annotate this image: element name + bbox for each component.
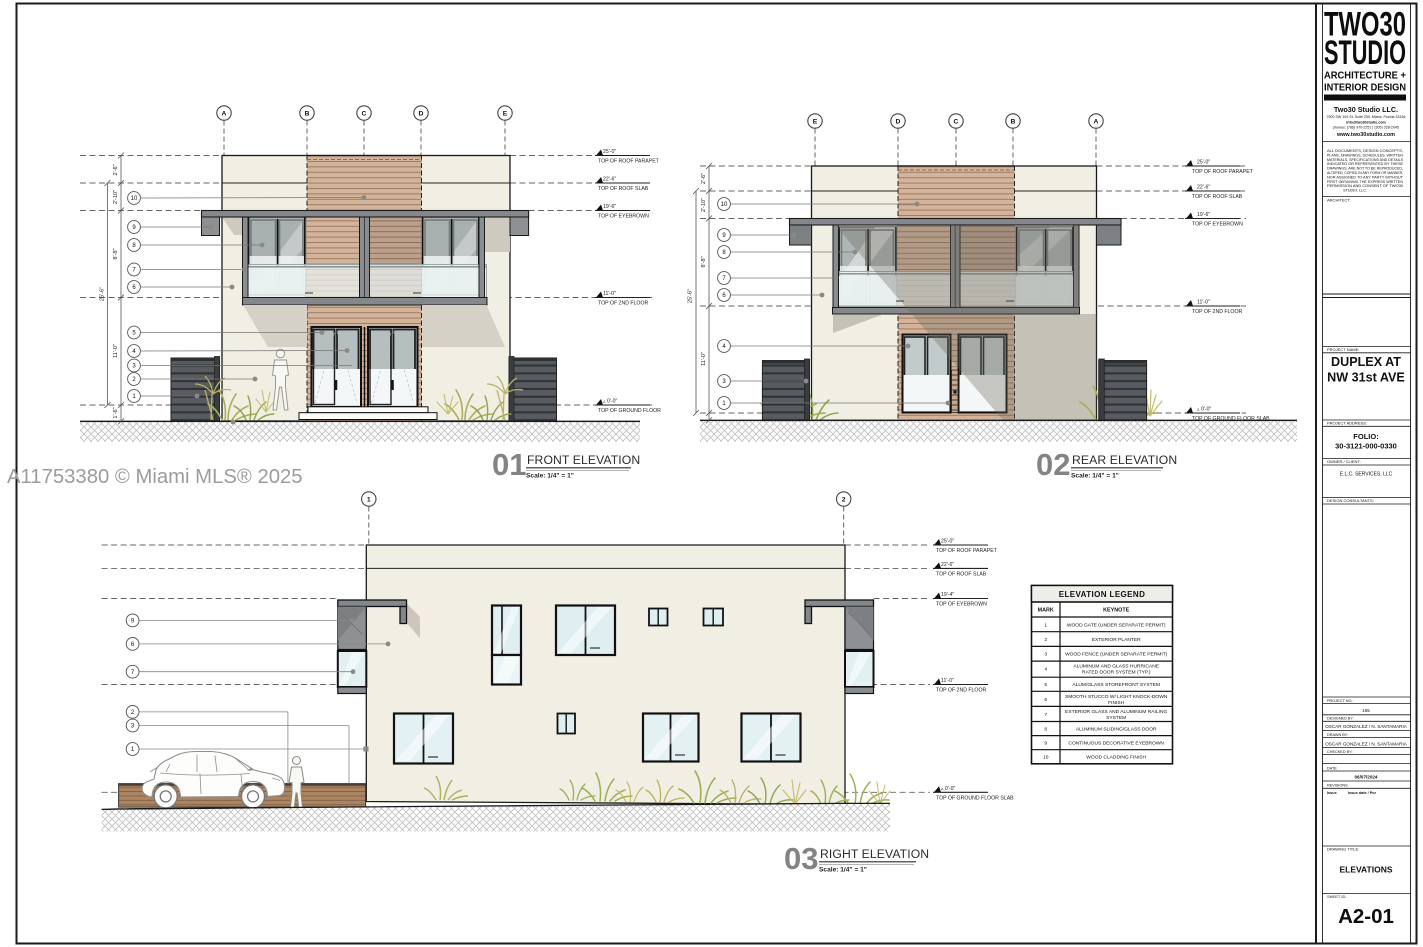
svg-text:DRAWN BY:: DRAWN BY: xyxy=(1327,733,1348,737)
svg-text:E: E xyxy=(813,119,818,126)
svg-text:4: 4 xyxy=(1044,667,1047,673)
svg-text:WOOD CLADDING FINISH: WOOD CLADDING FINISH xyxy=(1086,755,1146,761)
svg-text:RIGHT ELEVATION: RIGHT ELEVATION xyxy=(820,847,929,861)
svg-text:25'-0": 25'-0" xyxy=(1197,160,1210,166)
svg-text:TOP OF EYEBROWN: TOP OF EYEBROWN xyxy=(1192,222,1243,228)
svg-text:DATE: DATE xyxy=(1327,766,1337,770)
svg-text:OSCAR GONZALEZ / N. SANTAMARIA: OSCAR GONZALEZ / N. SANTAMARIA xyxy=(1325,741,1408,746)
svg-text:REAR ELEVATION: REAR ELEVATION xyxy=(1072,453,1177,467)
svg-text:6: 6 xyxy=(1044,697,1047,703)
svg-text:SMOOTH STUCCO W/ LIGHT KNOCK-D: SMOOTH STUCCO W/ LIGHT KNOCK-DOWN xyxy=(1065,694,1168,700)
svg-text:7: 7 xyxy=(1044,712,1047,718)
svg-text:TOP OF 2ND FLOOR: TOP OF 2ND FLOOR xyxy=(598,301,649,307)
svg-text:INTERIOR DESIGN: INTERIOR DESIGN xyxy=(1324,82,1406,94)
svg-text:▵ 0'-0": ▵ 0'-0" xyxy=(1197,407,1212,413)
svg-text:ARCHITECT:: ARCHITECT: xyxy=(1327,198,1351,203)
svg-text:▵ 0'-0": ▵ 0'-0" xyxy=(603,399,618,405)
svg-text:155: 155 xyxy=(1362,708,1370,713)
svg-text:TOP OF ROOF SLAB: TOP OF ROOF SLAB xyxy=(598,186,649,192)
svg-text:TOP OF GROUND FLOOR SLAB: TOP OF GROUND FLOOR SLAB xyxy=(1192,416,1270,422)
svg-text:01: 01 xyxy=(492,447,526,482)
svg-text:EXTERIOR GLASS AND ALUMINUM RA: EXTERIOR GLASS AND ALUMINUM RAILING xyxy=(1065,709,1167,715)
svg-text:NOR ASSIGNED TO ANY PARTY: NOR ASSIGNED TO ANY PARTY WITHOUT xyxy=(1327,175,1404,179)
svg-text:Two30 Studio LLC.: Two30 Studio LLC. xyxy=(1334,105,1398,114)
svg-text:TOP OF EYEBROWN: TOP OF EYEBROWN xyxy=(936,602,987,608)
svg-text:EXTERIOR PLANTER: EXTERIOR PLANTER xyxy=(1092,637,1141,643)
svg-text:02: 02 xyxy=(1036,447,1070,482)
svg-text:3: 3 xyxy=(1044,652,1047,658)
svg-text:ALUM/GLASS STOREFRONT SYSTEM: ALUM/GLASS STOREFRONT SYSTEM xyxy=(1072,682,1160,688)
svg-text:TOP OF ROOF PARAPET: TOP OF ROOF PARAPET xyxy=(936,548,998,554)
svg-text:2'-6": 2'-6" xyxy=(701,173,707,184)
svg-text:TOP OF ROOF SLAB: TOP OF ROOF SLAB xyxy=(936,572,987,578)
svg-text:A: A xyxy=(222,111,227,118)
svg-text:SYSTEM: SYSTEM xyxy=(1106,715,1126,721)
svg-text:FINISH: FINISH xyxy=(1108,700,1124,706)
svg-text:11'-0": 11'-0" xyxy=(701,352,707,366)
svg-text:B: B xyxy=(305,111,310,118)
svg-text:RATED DOOR SYSTEM (TYP.): RATED DOOR SYSTEM (TYP.) xyxy=(1082,670,1151,676)
svg-text:TOP OF GROUND FLOOR SLAB: TOP OF GROUND FLOOR SLAB xyxy=(936,796,1014,802)
svg-text:30-3121-000-0330: 30-3121-000-0330 xyxy=(1335,442,1397,451)
svg-text:TOP OF EYEBROWN: TOP OF EYEBROWN xyxy=(598,214,649,220)
svg-text:10: 10 xyxy=(1043,755,1049,761)
svg-text:D: D xyxy=(419,111,424,118)
svg-text:2: 2 xyxy=(842,497,846,504)
svg-text:22'-6": 22'-6" xyxy=(603,177,616,183)
svg-text:03: 03 xyxy=(784,841,818,876)
svg-text:7500 SW 104 St. Suite 250, Mia: 7500 SW 104 St. Suite 250, Miami, Florid… xyxy=(1327,115,1406,119)
svg-text:DESIGNED BY:: DESIGNED BY: xyxy=(1327,717,1354,721)
svg-text:1: 1 xyxy=(1044,622,1047,628)
svg-text:8: 8 xyxy=(1044,727,1047,733)
svg-text:PERMISSION AND CONSENT OF: PERMISSION AND CONSENT OF TWO30 xyxy=(1327,184,1403,188)
svg-text:C: C xyxy=(362,111,367,118)
svg-text:STUDIO: STUDIO xyxy=(1324,34,1406,72)
svg-text:INDICATED OR REPRESENTED BY: INDICATED OR REPRESENTED BY THESE xyxy=(1327,162,1404,166)
svg-text:19'-4": 19'-4" xyxy=(941,592,954,598)
svg-text:Issue: Issue xyxy=(1327,791,1337,795)
svg-text:06/07/2024: 06/07/2024 xyxy=(1355,774,1378,779)
svg-text:2'-6": 2'-6" xyxy=(113,164,119,175)
svg-text:phones: (786) 970-2251 | (305): phones: (786) 970-2251 | (305) 328-2045 xyxy=(1333,126,1399,130)
svg-text:ALTERED, COPIED IN ANY FORM OR: ALTERED, COPIED IN ANY FORM OR MANNER, xyxy=(1327,171,1403,175)
svg-text:8'-8": 8'-8" xyxy=(113,248,119,259)
svg-text:22'-6": 22'-6" xyxy=(941,562,954,568)
svg-text:PROJECT NO.:: PROJECT NO.: xyxy=(1327,699,1354,703)
svg-text:OWNER / CLIENT:: OWNER / CLIENT: xyxy=(1327,459,1361,464)
svg-text:FIRST OBTAINING THE EXPRESS: FIRST OBTAINING THE EXPRESS WRITTEN xyxy=(1327,180,1403,184)
svg-text:TOP OF ROOF SLAB: TOP OF ROOF SLAB xyxy=(1192,194,1243,200)
svg-text:22'-6": 22'-6" xyxy=(1197,185,1210,191)
svg-text:▵ 0'-0": ▵ 0'-0" xyxy=(941,786,956,792)
svg-text:A11753380 © Miami MLS® 2025: A11753380 © Miami MLS® 2025 xyxy=(7,466,303,488)
svg-text:10: 10 xyxy=(721,202,728,208)
svg-text:2'-10": 2'-10" xyxy=(701,198,707,212)
svg-text:STUDIO, LLC.: STUDIO, LLC. xyxy=(1343,189,1367,193)
svg-text:PLANS, DRAWINGS, SCHEDULES, WR: PLANS, DRAWINGS, SCHEDULES, WRITTEN xyxy=(1327,153,1403,157)
svg-text:ELEVATIONS: ELEVATIONS xyxy=(1339,865,1392,875)
svg-text:10: 10 xyxy=(131,196,138,202)
svg-text:Scale: 1/4" = 1": Scale: 1/4" = 1" xyxy=(1071,473,1119,480)
svg-text:19'-6": 19'-6" xyxy=(603,204,616,210)
svg-text:CHECKED BY:: CHECKED BY: xyxy=(1327,750,1353,754)
svg-text:E.L.C. SERVICES, LLC: E.L.C. SERVICES, LLC xyxy=(1340,472,1393,478)
svg-text:ALUMINUM SLIDING/GLASS DOOR: ALUMINUM SLIDING/GLASS DOOR xyxy=(1076,727,1157,733)
svg-text:TOP OF 2ND FLOOR: TOP OF 2ND FLOOR xyxy=(1192,309,1243,315)
svg-text:A: A xyxy=(1094,119,1099,126)
svg-text:1: 1 xyxy=(367,497,371,504)
svg-text:25'-0": 25'-0" xyxy=(941,539,954,545)
svg-text:SHEET ID.: SHEET ID. xyxy=(1327,894,1347,899)
svg-text:A2-01: A2-01 xyxy=(1338,905,1394,928)
svg-text:11'-0": 11'-0" xyxy=(941,678,954,684)
svg-text:11'-0": 11'-0" xyxy=(113,344,119,358)
svg-text:PROJECT NAME:: PROJECT NAME: xyxy=(1327,347,1359,352)
svg-text:2'-10": 2'-10" xyxy=(113,190,119,204)
svg-text:www.two30studio.com: www.two30studio.com xyxy=(1336,132,1395,138)
svg-text:PROJECT ADDRESS:: PROJECT ADDRESS: xyxy=(1327,421,1367,426)
svg-text:MATERIALS, SPECIFICATIONS AND: MATERIALS, SPECIFICATIONS AND DETAILS xyxy=(1327,158,1404,162)
svg-text:8'-8": 8'-8" xyxy=(701,256,707,267)
svg-text:CONTINUOUS DECORATIVE EYEBROWN: CONTINUOUS DECORATIVE EYEBROWN xyxy=(1068,741,1164,747)
svg-text:DRAWING TITLE:: DRAWING TITLE: xyxy=(1327,847,1359,852)
svg-text:11'-0": 11'-0" xyxy=(1197,300,1210,306)
svg-text:E: E xyxy=(503,111,508,118)
svg-text:ARCHITECTURE +: ARCHITECTURE + xyxy=(1324,70,1406,82)
svg-text:DUPLEX AT: DUPLEX AT xyxy=(1331,355,1401,369)
svg-text:Scale: 1/4" = 1": Scale: 1/4" = 1" xyxy=(819,867,867,874)
svg-text:DRAWINGS, ARE NOT TO BE REPROD: DRAWINGS, ARE NOT TO BE REPRODUCED, xyxy=(1327,167,1403,171)
svg-text:ALUMINUM AND GLASS HURRICANE: ALUMINUM AND GLASS HURRICANE xyxy=(1073,664,1159,670)
svg-text:FRONT ELEVATION: FRONT ELEVATION xyxy=(527,453,640,467)
svg-text:ALL DOCUMENTS, DESIGN CONCE: ALL DOCUMENTS, DESIGN CONCEPTS, xyxy=(1327,149,1403,153)
svg-text:WOOD GATE (UNDER SEPARATE PERM: WOOD GATE (UNDER SEPARATE PERMIT) xyxy=(1067,622,1166,628)
svg-text:2: 2 xyxy=(1044,637,1047,643)
svg-text:25'-6": 25'-6" xyxy=(100,287,106,301)
svg-text:Issue date / Por: Issue date / Por xyxy=(1348,791,1377,795)
svg-text:TOP OF GROUND FLOOR: TOP OF GROUND FLOOR xyxy=(598,408,661,414)
svg-text:FOLIO:: FOLIO: xyxy=(1353,432,1378,441)
svg-text:Scale: 1/4" = 1": Scale: 1/4" = 1" xyxy=(526,473,574,480)
svg-text:1'-6": 1'-6" xyxy=(113,407,119,418)
svg-text:DESIGN CONSULTANTS:: DESIGN CONSULTANTS: xyxy=(1327,498,1374,503)
svg-text:C: C xyxy=(954,119,959,126)
svg-text:TOP OF 2ND FLOOR: TOP OF 2ND FLOOR xyxy=(936,688,987,694)
svg-text:9: 9 xyxy=(1044,741,1047,747)
svg-text:11'-0": 11'-0" xyxy=(603,291,616,297)
svg-text:D: D xyxy=(896,119,901,126)
svg-text:19'-6": 19'-6" xyxy=(1197,212,1210,218)
svg-text:info@two30studio.com: info@two30studio.com xyxy=(1346,121,1385,125)
svg-text:MARK: MARK xyxy=(1038,608,1054,614)
svg-text:5: 5 xyxy=(1044,682,1047,688)
svg-text:REVISIONS: REVISIONS xyxy=(1327,784,1348,788)
svg-text:WOOD FENCE (UNDER SEPARATE PER: WOOD FENCE (UNDER SEPARATE PERMIT) xyxy=(1065,652,1168,658)
svg-text:TOP OF ROOF PARAPET: TOP OF ROOF PARAPET xyxy=(598,159,660,165)
svg-text:TOP OF ROOF PARAPET: TOP OF ROOF PARAPET xyxy=(1192,169,1254,175)
svg-text:B: B xyxy=(1011,119,1016,126)
svg-text:25'-6": 25'-6" xyxy=(688,289,694,303)
svg-text:25'-0": 25'-0" xyxy=(603,149,616,155)
svg-text:NW 31st AVE: NW 31st AVE xyxy=(1327,371,1405,385)
svg-text:OSCAR GONZALEZ / N. SANTAMARIA: OSCAR GONZALEZ / N. SANTAMARIA xyxy=(1325,724,1408,729)
svg-text:KEYNOTE: KEYNOTE xyxy=(1103,608,1129,614)
svg-text:ELEVATION LEGEND: ELEVATION LEGEND xyxy=(1059,590,1146,599)
